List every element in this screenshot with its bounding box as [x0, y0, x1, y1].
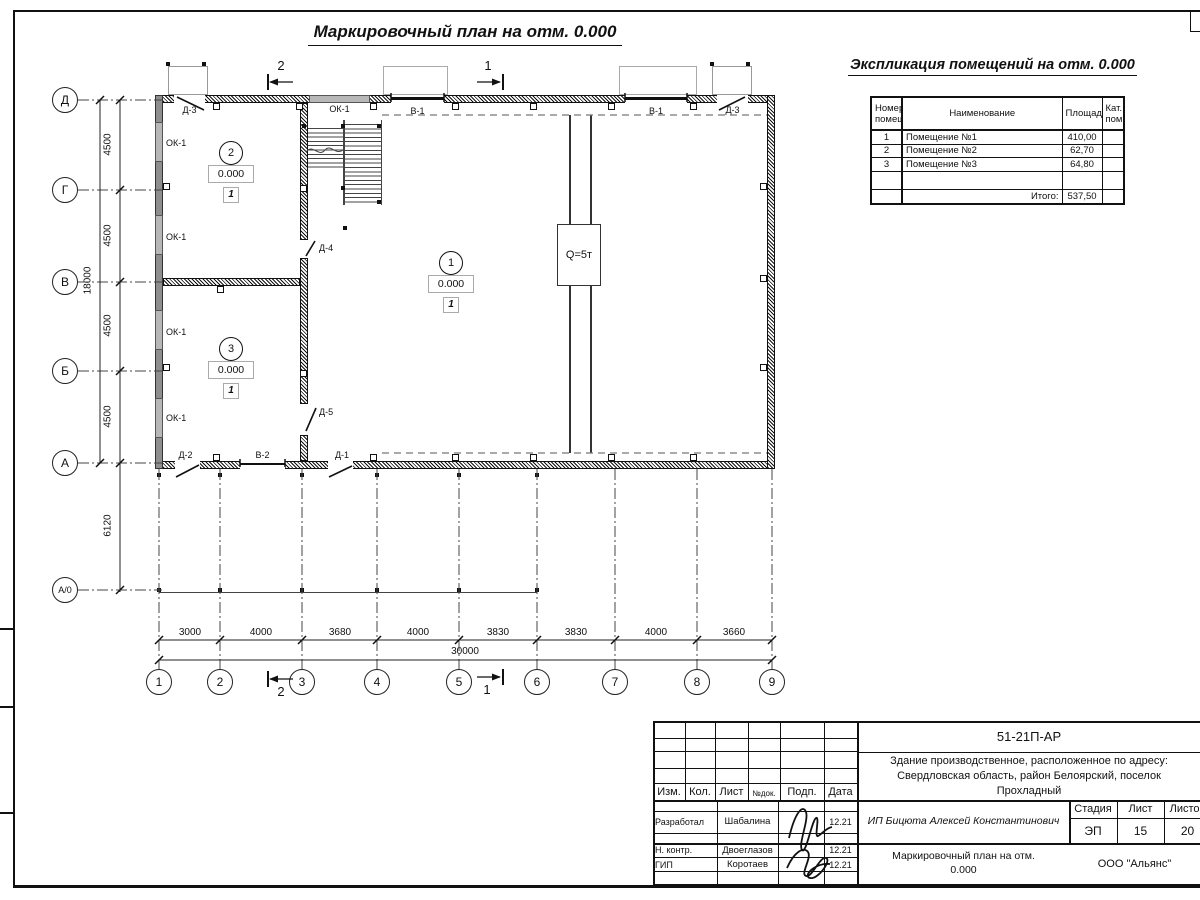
pilaster	[213, 103, 220, 110]
fold-mark-3	[0, 812, 13, 814]
porch-post	[166, 62, 170, 66]
tb-role-ncontr: Н. контр.	[655, 845, 715, 855]
tb-line	[653, 833, 858, 834]
dim-left-2: 4500	[103, 216, 114, 256]
tb-name-developer: Шабалина	[717, 816, 778, 827]
row2-name: Помещение №2	[902, 144, 1062, 157]
tb-line	[857, 721, 859, 886]
row3-num: 3	[871, 157, 902, 171]
row3-area: 64,80	[1062, 157, 1102, 171]
canopy-post	[535, 588, 539, 592]
label-d3-left: Д-3	[172, 105, 207, 115]
label-d4: Д-4	[319, 243, 349, 253]
tb-role-gip: ГИП	[655, 860, 715, 870]
tb-col-list: Лист	[715, 786, 748, 798]
tb-line	[653, 800, 1200, 802]
column-post	[457, 473, 461, 477]
label-ok1-w1: ОК-1	[166, 138, 196, 148]
row1-num: 1	[871, 130, 902, 144]
tb-address-line1: Здание производственное, расположенное п…	[858, 755, 1200, 767]
stair-right-edge	[381, 120, 382, 205]
dim-bottom-7: 4000	[631, 627, 681, 638]
table-row: 1 Помещение №1 410,00	[871, 130, 1124, 144]
stair-post	[377, 200, 381, 204]
label-d2: Д-2	[168, 450, 203, 460]
pilaster	[452, 103, 459, 110]
wall-interior-vertical-b	[300, 258, 308, 404]
dim-bottom-1: 3000	[165, 627, 215, 638]
tb-col-izm: Изм.	[653, 786, 685, 798]
explication-title-wrap: Экспликация помещений на отм. 0.000	[845, 56, 1140, 76]
door-leaf-d5	[306, 408, 316, 431]
dim-left-1: 4500	[103, 125, 114, 165]
tb-date-developer: 12.21	[824, 817, 857, 827]
label-ok1-w2: ОК-1	[166, 232, 196, 242]
dim-bottom-2: 4000	[236, 627, 286, 638]
corner-doc-box	[1190, 10, 1200, 32]
canopy-edge-line	[159, 592, 537, 593]
axis-col-3: 3	[289, 669, 315, 695]
pilaster	[296, 103, 303, 110]
room-1-category: 1	[443, 297, 459, 313]
dim-left-3: 4500	[103, 306, 114, 346]
window-ok1-left-3	[155, 310, 163, 350]
tb-sheets-value: 20	[1164, 824, 1200, 838]
canopy-post	[375, 588, 379, 592]
stair-flight-right	[344, 124, 381, 205]
pilaster	[300, 370, 307, 377]
axis-row-D: Д	[52, 87, 78, 113]
gate-v2-leaf	[240, 463, 285, 465]
dim-bottom-4: 4000	[393, 627, 443, 638]
tb-line	[1069, 818, 1200, 819]
room-2-elevation: 0.000	[208, 165, 254, 183]
tb-line	[653, 783, 858, 784]
row2-num: 2	[871, 144, 902, 157]
room-1-elevation: 0.000	[428, 275, 474, 293]
tb-line	[653, 857, 858, 858]
porch-post	[710, 62, 714, 66]
tb-document-code: 51-21П-АР	[858, 729, 1200, 744]
stair-flight-left	[308, 128, 344, 169]
axis-col-lines	[159, 469, 772, 669]
tb-line	[653, 871, 858, 872]
column-post	[535, 473, 539, 477]
wall-interior-horizontal	[163, 278, 300, 286]
pilaster	[530, 103, 537, 110]
tb-line	[653, 811, 858, 812]
row1-cat	[1102, 130, 1124, 144]
axis-col-2: 2	[207, 669, 233, 695]
dim-left-total: 18000	[83, 261, 94, 301]
row3-cat	[1102, 157, 1124, 171]
stair-post	[341, 186, 345, 190]
table-row-empty	[871, 171, 1124, 189]
tb-stage-label: Стадия	[1069, 803, 1117, 815]
tb-col-podp: Подп.	[780, 786, 824, 798]
explication-table: Номер помещ. Наименование Площадь Кат. п…	[870, 96, 1125, 205]
dim-bottom-6: 3830	[551, 627, 601, 638]
frame-left	[13, 10, 15, 887]
gate-v1-right-leaf	[625, 97, 687, 100]
axis-col-5: 5	[446, 669, 472, 695]
total-label: Итого:	[902, 189, 1062, 204]
dim-bottom-5: 3830	[473, 627, 523, 638]
pilaster	[370, 103, 377, 110]
wall-right	[767, 95, 775, 469]
tb-sheet-label: Лист	[1117, 803, 1164, 815]
table-row: 3 Помещение №3 64,80	[871, 157, 1124, 171]
fold-mark-1	[0, 628, 13, 630]
tb-sheet-title-line1: Маркировочный план на отм.	[860, 850, 1067, 862]
wall-interior-vertical-c	[300, 435, 308, 461]
pilaster	[163, 364, 170, 371]
pilaster	[370, 454, 377, 461]
tb-col-data: Дата	[824, 786, 857, 798]
label-d1: Д-1	[322, 450, 362, 460]
axis-col-8: 8	[684, 669, 710, 695]
canopy-post	[457, 588, 461, 592]
door-opening-d3-right	[717, 95, 748, 103]
room-1-bubble: 1	[439, 251, 463, 275]
crane-box: Q=5т	[557, 224, 601, 286]
pilaster	[608, 103, 615, 110]
axis-col-6: 6	[524, 669, 550, 695]
label-v1-right: В-1	[625, 106, 687, 116]
label-d5: Д-5	[319, 407, 349, 417]
section-mark-2-bottom: 2	[271, 684, 291, 699]
axis-row-A: А	[52, 450, 78, 476]
porch-post	[746, 62, 750, 66]
pilaster	[530, 454, 537, 461]
fold-mark-2	[0, 706, 13, 708]
room-3-elevation: 0.000	[208, 361, 254, 379]
label-v1-left: В-1	[391, 106, 444, 116]
porch-post	[202, 62, 206, 66]
tb-name-gip: Коротаев	[717, 859, 778, 870]
section-mark-1-bottom: 1	[477, 682, 497, 697]
canopy-post	[157, 588, 161, 592]
pilaster	[690, 103, 697, 110]
window-ok1-left-1	[155, 122, 163, 162]
dimension-ticks	[96, 96, 776, 664]
canopy-post	[300, 588, 304, 592]
label-d3-right: Д-3	[715, 105, 750, 115]
tb-line	[858, 752, 1200, 753]
pilaster	[217, 286, 224, 293]
table-row: 2 Помещение №2 62,70	[871, 144, 1124, 157]
pilaster	[760, 275, 767, 282]
window-ok1-top	[309, 95, 370, 103]
tb-col-kol: Кол.	[685, 786, 715, 798]
tb-line	[653, 738, 858, 739]
tb-line	[653, 768, 858, 769]
tb-sheet-value: 15	[1117, 824, 1164, 838]
axis-row-V: В	[52, 269, 78, 295]
tb-date-gip: 12.21	[824, 860, 857, 870]
room-3-bubble: 3	[219, 337, 243, 361]
explication-title: Экспликация помещений на отм. 0.000	[848, 57, 1137, 76]
tb-client: ИП Бицюта Алексей Константинович	[860, 815, 1067, 827]
drawing-sheet: Маркировочный план на отм. 0.000 Эксплик…	[0, 0, 1200, 900]
door-opening-d1	[328, 461, 353, 469]
tb-stage-value: ЭП	[1069, 824, 1117, 838]
dim-bottom-8: 3660	[709, 627, 759, 638]
tb-line	[653, 751, 858, 752]
total-value: 537,50	[1062, 189, 1102, 204]
pilaster	[760, 364, 767, 371]
axis-col-1: 1	[146, 669, 172, 695]
column-post	[343, 226, 347, 230]
door-opening-d2	[175, 461, 200, 469]
pilaster	[213, 454, 220, 461]
col-header-cat: Кат. пом.	[1102, 97, 1124, 130]
column-post	[157, 473, 161, 477]
row3-name: Помещение №3	[902, 157, 1062, 171]
pilaster	[300, 185, 307, 192]
tb-sheet-title-line2: 0.000	[860, 864, 1067, 876]
porch-left	[168, 66, 208, 95]
room-2-bubble: 2	[219, 141, 243, 165]
room-2-category: 1	[223, 187, 239, 203]
ramp-left	[383, 66, 448, 95]
stair-post	[302, 124, 306, 128]
tb-col-doc: №док.	[748, 789, 780, 798]
stair-post	[341, 124, 345, 128]
axis-row-lines	[78, 100, 162, 590]
stair-post	[377, 124, 381, 128]
pilaster	[452, 454, 459, 461]
plan-title-wrap: Маркировочный план на отм. 0.000	[240, 22, 690, 46]
canopy-post	[218, 588, 222, 592]
tb-role-developer: Разработал	[655, 817, 715, 827]
pilaster	[608, 454, 615, 461]
tb-name-ncontr: Двоеглазов	[717, 845, 778, 856]
room-3-category: 1	[223, 383, 239, 399]
gate-v1-left-leaf	[391, 97, 444, 100]
col-header-name: Наименование	[902, 97, 1062, 130]
pilaster	[760, 183, 767, 190]
row2-area: 62,70	[1062, 144, 1102, 157]
page-title: Маркировочный план на отм. 0.000	[308, 22, 623, 46]
crane-capacity-label: Q=5т	[566, 249, 592, 261]
ramp-right	[619, 66, 697, 95]
dim-left-6120: 6120	[103, 506, 114, 546]
tb-sheets-label: Листов	[1164, 803, 1200, 815]
axis-row-G: Г	[52, 177, 78, 203]
window-ok1-left-4	[155, 398, 163, 438]
dim-left-4: 4500	[103, 397, 114, 437]
dim-bottom-total: 30000	[440, 646, 490, 657]
tb-date-ncontr: 12.21	[824, 845, 857, 855]
frame-top	[13, 10, 1200, 12]
row2-cat	[1102, 144, 1124, 157]
pilaster	[163, 183, 170, 190]
section-mark-1-top: 1	[478, 58, 498, 73]
column-post	[218, 473, 222, 477]
col-header-area: Площадь	[1062, 97, 1102, 130]
column-post	[375, 473, 379, 477]
dim-bottom-3: 3680	[315, 627, 365, 638]
axis-row-B: Б	[52, 358, 78, 384]
porch-right	[712, 66, 752, 95]
label-ok1-top: ОК-1	[309, 104, 370, 114]
dimension-lines	[100, 100, 772, 660]
column-post	[300, 473, 304, 477]
stair-divider	[343, 120, 345, 205]
table-row-total: Итого: 537,50	[871, 189, 1124, 204]
col-header-number: Номер помещ.	[871, 97, 902, 130]
label-ok1-w4: ОК-1	[166, 413, 196, 423]
label-ok1-w3: ОК-1	[166, 327, 196, 337]
row1-area: 410,00	[1062, 130, 1102, 144]
tb-address-line3: Прохладный	[858, 785, 1200, 797]
window-ok1-left-2	[155, 215, 163, 255]
pilaster	[690, 454, 697, 461]
tb-company: ООО "Альянс"	[1069, 858, 1200, 870]
tb-address-line2: Свердловская область, район Белоярский, …	[858, 770, 1200, 782]
axis-col-7: 7	[602, 669, 628, 695]
label-v2: В-2	[240, 450, 285, 460]
axis-col-9: 9	[759, 669, 785, 695]
axis-row-A0: А/0	[52, 577, 78, 603]
section-mark-2-top: 2	[271, 58, 291, 73]
door-leaf-d4	[306, 241, 315, 256]
axis-col-4: 4	[364, 669, 390, 695]
row1-name: Помещение №1	[902, 130, 1062, 144]
door-opening-d3-left	[174, 95, 205, 103]
